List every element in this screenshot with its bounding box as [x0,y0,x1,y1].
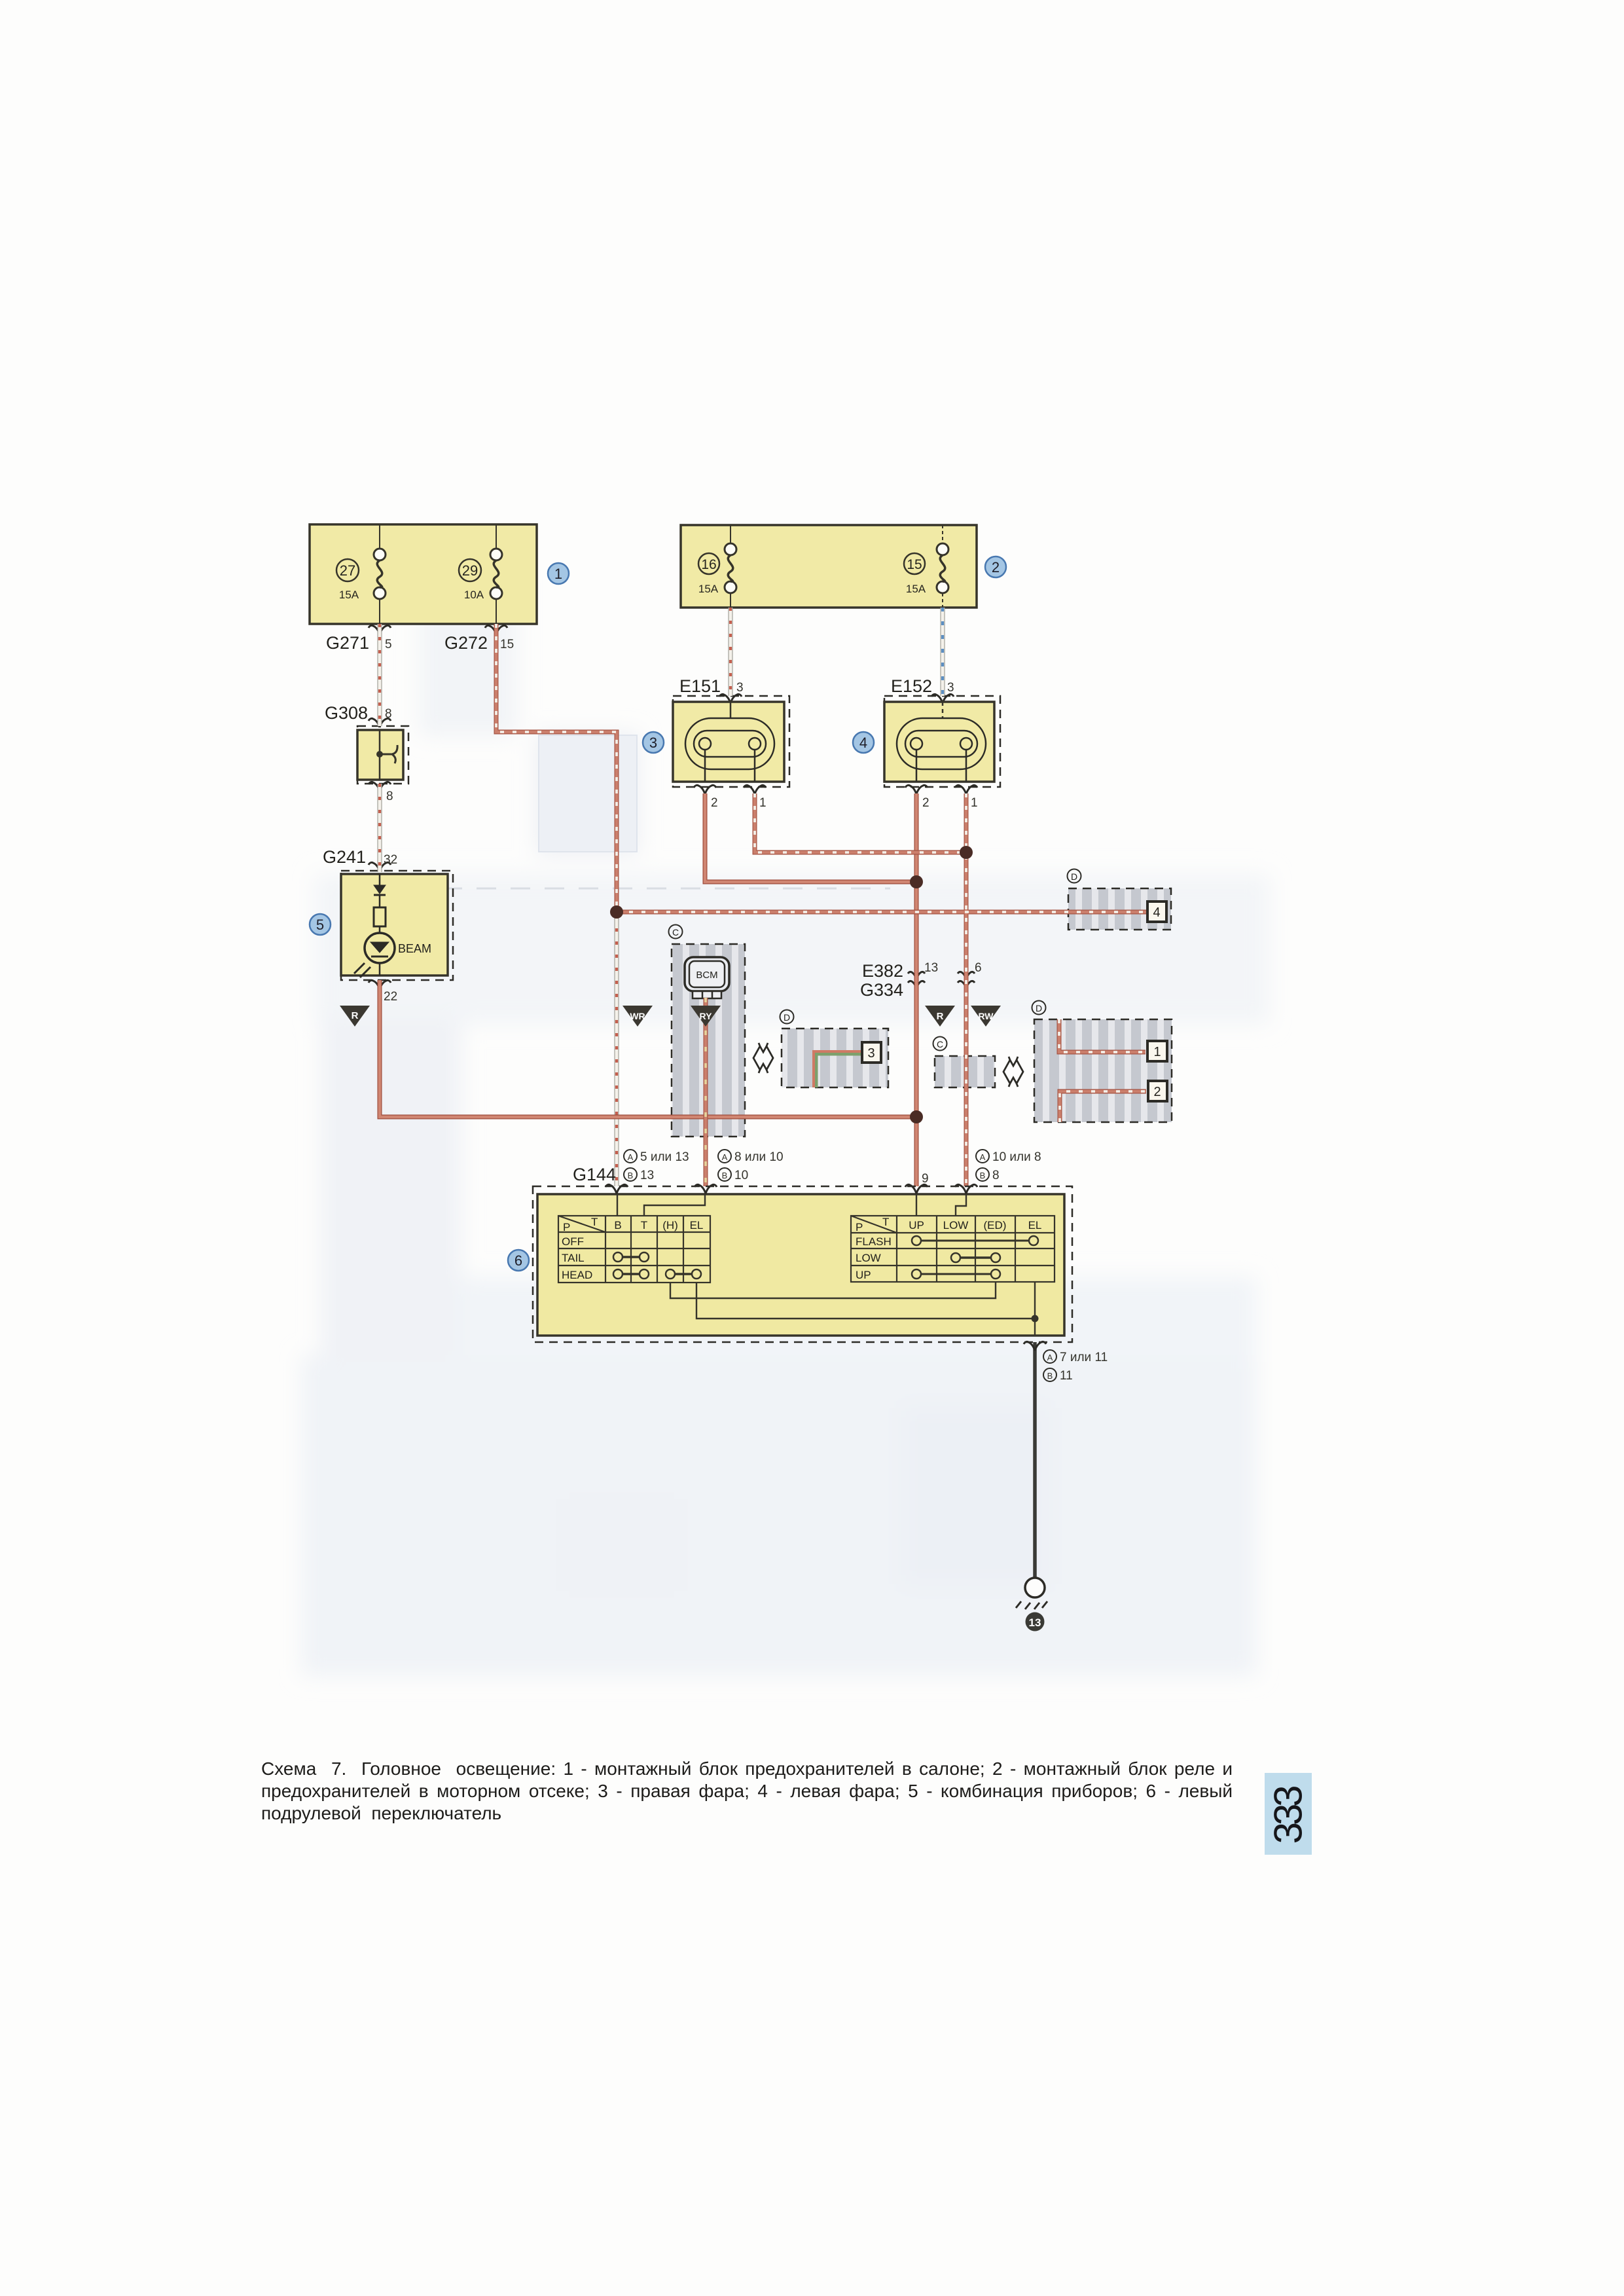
svg-text:C: C [937,1039,943,1049]
svg-text:T: T [882,1216,889,1228]
svg-text:2: 2 [992,559,1000,575]
svg-text:B: B [1047,1371,1053,1381]
svg-text:R: R [937,1011,944,1022]
svg-text:15A: 15A [906,583,926,595]
svg-text:UP: UP [856,1269,871,1281]
svg-text:9: 9 [922,1172,929,1186]
svg-text:15A: 15A [339,589,359,601]
svg-text:1: 1 [971,796,978,810]
svg-text:13: 13 [640,1169,654,1182]
svg-text:G272: G272 [444,633,488,653]
svg-text:3: 3 [867,1046,875,1061]
svg-text:10 или 8: 10 или 8 [992,1150,1041,1164]
svg-text:P: P [563,1221,570,1233]
svg-text:WR: WR [630,1011,645,1021]
svg-text:10A: 10A [464,589,484,601]
svg-text:D: D [784,1012,790,1023]
svg-text:G241: G241 [323,847,366,867]
svg-text:27: 27 [340,562,355,579]
svg-text:B: B [722,1171,728,1180]
svg-text:2: 2 [922,796,929,810]
svg-text:3: 3 [947,681,954,695]
svg-text:13: 13 [1029,1616,1041,1629]
svg-text:6: 6 [975,961,982,975]
svg-text:FLASH: FLASH [856,1235,892,1248]
svg-text:22: 22 [384,990,397,1004]
svg-text:E382: E382 [862,961,903,981]
svg-text:G334: G334 [860,980,903,1000]
svg-text:B: B [628,1171,634,1180]
svg-text:OFF: OFF [562,1235,584,1248]
svg-text:15: 15 [907,557,922,572]
svg-text:BEAM: BEAM [398,942,431,955]
svg-text:B: B [614,1219,621,1231]
svg-text:15: 15 [500,638,514,651]
svg-text:TAIL: TAIL [562,1252,585,1264]
svg-text:10: 10 [734,1169,748,1182]
svg-text:1: 1 [1153,1045,1161,1059]
svg-text:1: 1 [759,796,767,810]
svg-text:P: P [856,1221,863,1233]
svg-text:8: 8 [992,1169,1000,1182]
svg-text:EL: EL [690,1219,704,1231]
svg-text:B: B [980,1171,986,1180]
svg-text:8: 8 [385,707,392,721]
svg-text:LOW: LOW [856,1252,881,1264]
svg-text:G144: G144 [573,1165,616,1184]
svg-text:13: 13 [924,961,938,975]
svg-text:(ED): (ED) [984,1219,1007,1231]
svg-text:UP: UP [909,1219,924,1231]
svg-text:R: R [352,1010,359,1021]
svg-text:(H): (H) [662,1219,678,1231]
svg-text:32: 32 [384,853,397,867]
svg-text:6: 6 [514,1252,522,1269]
svg-text:RW: RW [978,1011,994,1021]
svg-text:8: 8 [386,790,393,803]
svg-text:EL: EL [1028,1219,1042,1231]
svg-text:29: 29 [462,562,478,579]
svg-text:D: D [1036,1003,1042,1013]
svg-text:2: 2 [1153,1085,1161,1099]
svg-text:4: 4 [1153,905,1160,920]
svg-text:1: 1 [554,566,562,582]
svg-text:2: 2 [711,796,718,810]
svg-text:A: A [722,1152,728,1162]
svg-text:4: 4 [859,735,867,751]
svg-text:16: 16 [701,557,716,572]
svg-text:T: T [591,1216,598,1228]
svg-text:D: D [1071,871,1077,882]
svg-text:3: 3 [736,681,744,695]
svg-text:5: 5 [385,638,392,651]
svg-text:HEAD: HEAD [562,1269,592,1281]
svg-text:C: C [672,927,679,938]
svg-text:3: 3 [649,735,657,751]
svg-text:G271: G271 [326,633,369,653]
svg-text:8 или 10: 8 или 10 [734,1150,784,1164]
svg-text:7 или 11: 7 или 11 [1060,1351,1108,1364]
svg-text:E151: E151 [679,676,721,696]
svg-text:5: 5 [316,917,324,933]
svg-text:LOW: LOW [943,1219,969,1231]
svg-text:A: A [1047,1353,1053,1362]
svg-text:15A: 15A [698,583,719,595]
svg-text:G308: G308 [325,703,368,723]
svg-text:11: 11 [1060,1369,1073,1383]
svg-text:5 или 13: 5 или 13 [640,1150,689,1164]
svg-text:E152: E152 [891,676,932,696]
svg-text:A: A [980,1152,986,1162]
svg-text:A: A [628,1152,634,1162]
svg-text:BCM: BCM [696,970,717,981]
svg-text:RY: RY [700,1011,713,1021]
svg-text:T: T [641,1219,647,1231]
